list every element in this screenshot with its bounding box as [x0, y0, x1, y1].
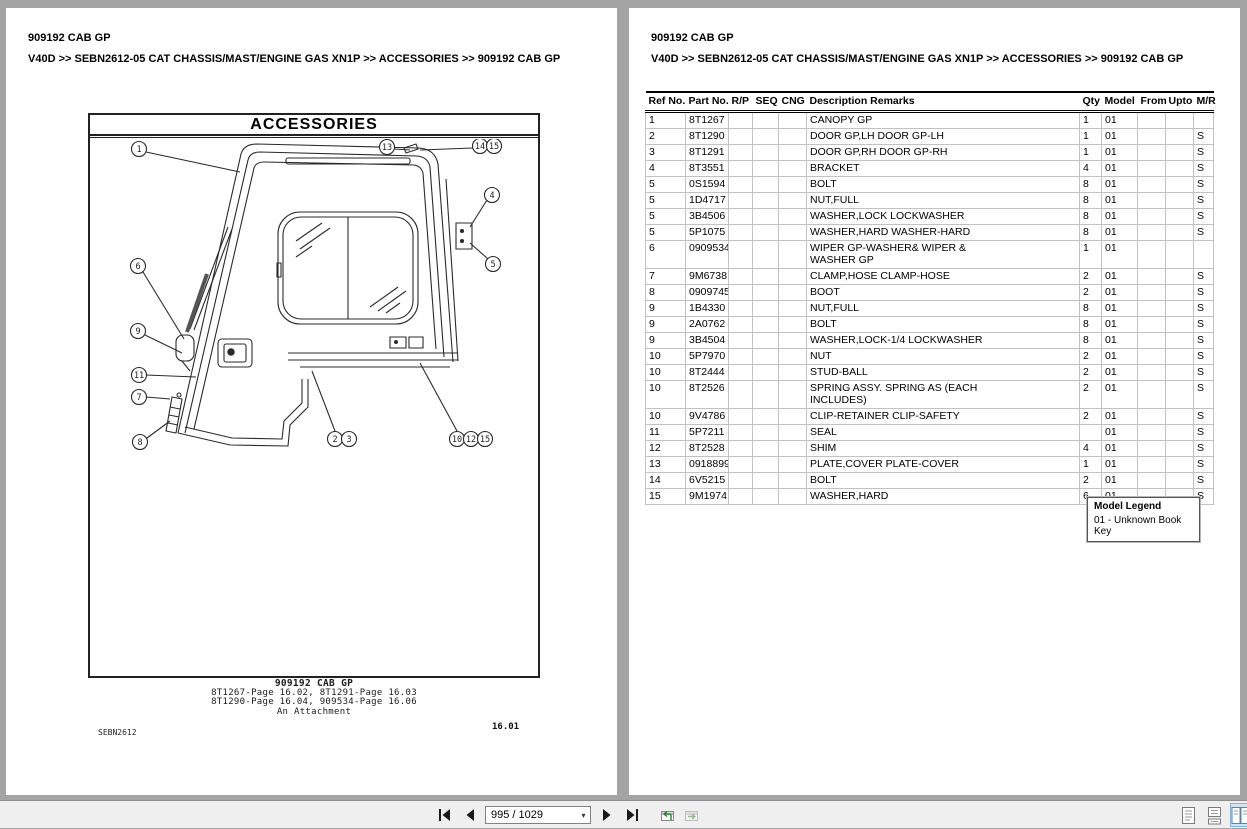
model-legend-box: Model Legend 01 - Unknown Book Key	[1087, 497, 1200, 542]
table-cell: 1B4330	[686, 301, 729, 317]
table-cell: 1	[646, 112, 686, 129]
table-cell: S	[1194, 129, 1214, 145]
table-cell	[1166, 161, 1194, 177]
table-cell: 9	[646, 317, 686, 333]
table-cell	[1138, 129, 1166, 145]
table-cell	[1166, 409, 1194, 425]
previous-page-button[interactable]	[460, 806, 478, 824]
table-cell: 3B4506	[686, 209, 729, 225]
table-cell: WASHER,HARD WASHER-HARD	[807, 225, 1080, 241]
previous-view-icon	[659, 807, 676, 823]
single-page-layout-icon	[1181, 806, 1196, 825]
table-cell: BOLT	[807, 177, 1080, 193]
table-cell: 01	[1102, 193, 1138, 209]
table-cell: S	[1194, 425, 1214, 441]
doc-code: SEBN2612	[98, 728, 137, 737]
table-cell	[1138, 285, 1166, 301]
table-cell	[753, 145, 779, 161]
svg-text:3: 3	[346, 435, 351, 445]
table-cell	[753, 193, 779, 209]
next-view-icon	[683, 807, 700, 823]
table-cell: 2	[1080, 381, 1102, 409]
table-cell: NUT,FULL	[807, 193, 1080, 209]
first-page-button[interactable]	[435, 806, 453, 824]
parts-table-header: Ref No.Part No.R/PSEQCNGDescription Rema…	[646, 92, 1214, 112]
table-cell: STUD-BALL	[807, 365, 1080, 381]
table-cell: 2	[1080, 269, 1102, 285]
table-cell: S	[1194, 285, 1214, 301]
breadcrumb: V40D >> SEBN2612-05 CAT CHASSIS/MAST/ENG…	[651, 53, 1183, 65]
table-cell: 01	[1102, 457, 1138, 473]
table-cell	[729, 317, 753, 333]
hinge-part	[176, 335, 194, 361]
table-row: 28T1290DOOR GP,LH DOOR GP-LH101S	[646, 129, 1214, 145]
table-cell	[753, 285, 779, 301]
table-cell	[729, 177, 753, 193]
table-cell	[753, 129, 779, 145]
viewer-status-bar: 995 / 1029 ▾	[0, 800, 1247, 828]
diagram-caption: 909192 CAB GP 8T1267-Page 16.02, 8T1291-…	[88, 679, 540, 717]
table-row: 60909534WIPER GP-WASHER& WIPER & WASHER …	[646, 241, 1214, 269]
table-row: 79M6738CLAMP,HOSE CLAMP-HOSE201S	[646, 269, 1214, 285]
table-cell: 8T2526	[686, 381, 729, 409]
table-row: 18T1267CANOPY GP101	[646, 112, 1214, 129]
table-cell: 0909745	[686, 285, 729, 301]
table-cell	[753, 269, 779, 285]
table-cell	[1166, 225, 1194, 241]
svg-text:4: 4	[489, 191, 494, 201]
svg-text:12: 12	[466, 435, 476, 445]
table-cell	[1166, 269, 1194, 285]
table-cell	[729, 129, 753, 145]
table-cell: 01	[1102, 209, 1138, 225]
cab-outline-outer	[178, 144, 453, 433]
table-cell	[1138, 301, 1166, 317]
single-page-layout-button[interactable]	[1178, 803, 1199, 827]
table-cell: 01	[1102, 441, 1138, 457]
table-cell	[1166, 441, 1194, 457]
table-cell: CLIP-RETAINER CLIP-SAFETY	[807, 409, 1080, 425]
table-cell: S	[1194, 333, 1214, 349]
table-cell: 10	[646, 365, 686, 381]
table-cell: 2	[1080, 473, 1102, 489]
table-row: 146V5215BOLT201S	[646, 473, 1214, 489]
svg-text:13: 13	[382, 143, 392, 153]
caption-line-3: An Attachment	[88, 708, 540, 718]
table-cell: S	[1194, 225, 1214, 241]
table-cell: WIPER GP-WASHER& WIPER & WASHER GP	[807, 241, 1080, 269]
table-cell	[1166, 285, 1194, 301]
table-cell	[1138, 161, 1166, 177]
hinge-line	[182, 361, 190, 371]
table-cell	[1166, 333, 1194, 349]
table-cell	[1166, 145, 1194, 161]
table-cell	[1138, 112, 1166, 129]
model-legend-entry: 01 - Unknown Book Key	[1094, 515, 1193, 537]
table-cell: S	[1194, 209, 1214, 225]
table-cell: 01	[1102, 473, 1138, 489]
table-cell	[779, 112, 807, 129]
table-cell	[729, 301, 753, 317]
table-cell: 8T2444	[686, 365, 729, 381]
column-header: Description Remarks	[807, 92, 1080, 112]
table-cell: 8	[1080, 317, 1102, 333]
svg-text:10: 10	[452, 435, 462, 445]
table-cell	[753, 457, 779, 473]
table-cell: 01	[1102, 241, 1138, 269]
table-cell	[1138, 317, 1166, 333]
svg-text:14: 14	[475, 142, 485, 152]
table-cell	[779, 349, 807, 365]
table-cell: 5	[646, 209, 686, 225]
table-cell	[779, 193, 807, 209]
table-cell: SEAL	[807, 425, 1080, 441]
previous-view-button[interactable]	[658, 806, 676, 824]
latch-knob	[228, 349, 234, 355]
table-cell: 9M6738	[686, 269, 729, 285]
table-row: 108T2444STUD-BALL201S	[646, 365, 1214, 381]
table-cell	[1138, 441, 1166, 457]
table-cell	[729, 473, 753, 489]
table-cell: 8	[1080, 225, 1102, 241]
table-cell	[779, 301, 807, 317]
table-cell: 10	[646, 349, 686, 365]
table-cell: 01	[1102, 129, 1138, 145]
parts-table-body: 18T1267CANOPY GP10128T1290DOOR GP,LH DOO…	[646, 112, 1214, 505]
column-header: From	[1138, 92, 1166, 112]
bracket-bolt-2	[461, 240, 464, 243]
top-clip	[404, 144, 418, 153]
table-cell: SPRING ASSY. SPRING AS (EACH INCLUDES)	[807, 381, 1080, 409]
table-cell: 2	[1080, 409, 1102, 425]
right-pillar	[446, 179, 458, 361]
table-cell: S	[1194, 317, 1214, 333]
table-cell: NUT,FULL	[807, 301, 1080, 317]
table-cell: 8	[1080, 209, 1102, 225]
cab-line-drawing: 1 13 14 15 4 5 6 9 11 7 8 2 3 10 12 15	[90, 139, 538, 676]
table-cell	[1138, 241, 1166, 269]
table-cell: 8T2528	[686, 441, 729, 457]
table-cell: S	[1194, 381, 1214, 409]
pdf-page-right: 909192 CAB GP V40D >> SEBN2612-05 CAT CH…	[629, 8, 1240, 795]
svg-text:15: 15	[489, 142, 499, 152]
table-cell: PLATE,COVER PLATE-COVER	[807, 457, 1080, 473]
table-cell: 4	[1080, 161, 1102, 177]
table-cell: 1	[1080, 145, 1102, 161]
page-dropdown-arrow-icon[interactable]: ▾	[577, 807, 590, 823]
table-cell	[779, 241, 807, 269]
table-cell: S	[1194, 193, 1214, 209]
page-title: 909192 CAB GP	[651, 32, 734, 44]
table-cell	[1166, 112, 1194, 129]
right-bracket	[456, 223, 472, 249]
table-cell	[753, 489, 779, 505]
pdf-page-left: 909192 CAB GP V40D >> SEBN2612-05 CAT CH…	[6, 8, 617, 795]
diagram-title: ACCESSORIES	[250, 116, 377, 133]
table-cell: 5P1075	[686, 225, 729, 241]
svg-text:6: 6	[135, 262, 140, 272]
table-row: 50S1594BOLT801S	[646, 177, 1214, 193]
table-cell: 9M1974	[686, 489, 729, 505]
table-cell	[729, 193, 753, 209]
table-cell: S	[1194, 177, 1214, 193]
table-cell	[1166, 177, 1194, 193]
table-cell: 01	[1102, 112, 1138, 129]
first-page-icon	[437, 807, 452, 823]
table-cell	[779, 285, 807, 301]
continuous-layout-icon	[1207, 806, 1222, 825]
page-indicator: 995 / 1029	[486, 809, 577, 821]
header-row: Ref No.Part No.R/PSEQCNGDescription Rema…	[646, 92, 1214, 112]
table-cell	[753, 161, 779, 177]
wiper-arm-a	[190, 227, 228, 329]
table-row: 93B4504WASHER,LOCK-1/4 LOCKWASHER801S	[646, 333, 1214, 349]
table-cell	[1080, 425, 1102, 441]
table-cell: 2	[646, 129, 686, 145]
rail-bolt	[395, 341, 398, 344]
table-cell: S	[1194, 473, 1214, 489]
table-cell: 3	[646, 145, 686, 161]
table-cell: 1	[1080, 129, 1102, 145]
table-cell: S	[1194, 365, 1214, 381]
table-cell: DOOR GP,LH DOOR GP-LH	[807, 129, 1080, 145]
table-cell	[1138, 365, 1166, 381]
table-cell: S	[1194, 441, 1214, 457]
table-cell: S	[1194, 349, 1214, 365]
callouts: 1 13 14 15 4 5 6 9 11 7 8 2 3 10 12 15	[131, 139, 502, 450]
next-page-button[interactable]	[598, 806, 616, 824]
table-cell	[1138, 145, 1166, 161]
table-cell	[1194, 241, 1214, 269]
table-cell	[1166, 381, 1194, 409]
table-cell	[729, 425, 753, 441]
table-cell: NUT	[807, 349, 1080, 365]
table-cell: 0S1594	[686, 177, 729, 193]
table-cell: WASHER,HARD	[807, 489, 1080, 505]
svg-text:5: 5	[490, 260, 495, 270]
table-cell	[753, 177, 779, 193]
table-cell: 11	[646, 425, 686, 441]
table-cell	[1166, 241, 1194, 269]
svg-text:1: 1	[136, 145, 141, 155]
leader-lines	[143, 148, 488, 438]
model-legend-title: Model Legend	[1094, 501, 1193, 512]
table-row: 128T2528SHIM401S	[646, 441, 1214, 457]
table-cell	[1166, 193, 1194, 209]
svg-text:9: 9	[135, 327, 140, 337]
table-cell	[1166, 457, 1194, 473]
table-cell: 4	[1080, 441, 1102, 457]
table-cell: 01	[1102, 225, 1138, 241]
table-cell: 1	[1080, 457, 1102, 473]
table-cell	[753, 209, 779, 225]
table-cell: 10	[646, 409, 686, 425]
table-cell	[729, 381, 753, 409]
column-header: M/R	[1194, 92, 1214, 112]
table-cell: 13	[646, 457, 686, 473]
table-cell: 7	[646, 269, 686, 285]
table-cell	[779, 473, 807, 489]
table-cell: BOLT	[807, 317, 1080, 333]
table-cell: WASHER,LOCK-1/4 LOCKWASHER	[807, 333, 1080, 349]
wiper-arm-b	[194, 229, 232, 330]
table-cell: 5	[646, 225, 686, 241]
continuous-layout-button[interactable]	[1204, 803, 1225, 827]
table-cell: 01	[1102, 161, 1138, 177]
table-cell: 01	[1102, 409, 1138, 425]
rail-block-right	[409, 337, 423, 348]
table-cell: 01	[1102, 177, 1138, 193]
last-page-button[interactable]	[623, 806, 641, 824]
page-number-input[interactable]: 995 / 1029 ▾	[485, 806, 591, 824]
table-row: 92A0762BOLT801S	[646, 317, 1214, 333]
table-cell	[1166, 473, 1194, 489]
table-cell	[779, 269, 807, 285]
table-cell	[779, 145, 807, 161]
table-cell: 2A0762	[686, 317, 729, 333]
table-cell: 2	[1080, 349, 1102, 365]
table-cell: 3B4504	[686, 333, 729, 349]
column-header: Model	[1102, 92, 1138, 112]
next-view-button[interactable]	[682, 806, 700, 824]
table-cell	[1138, 209, 1166, 225]
page-layout-buttons	[1178, 802, 1247, 828]
table-row: 105P7970NUT201S	[646, 349, 1214, 365]
table-cell: 01	[1102, 425, 1138, 441]
table-cell	[779, 225, 807, 241]
table-cell: 1	[1080, 241, 1102, 269]
table-cell	[779, 489, 807, 505]
table-cell	[1138, 349, 1166, 365]
table-cell	[1166, 425, 1194, 441]
table-cell: 8	[1080, 333, 1102, 349]
table-cell: 8	[1080, 177, 1102, 193]
facing-layout-button[interactable]	[1230, 803, 1247, 827]
table-cell	[1166, 301, 1194, 317]
table-cell	[729, 241, 753, 269]
table-cell	[1166, 349, 1194, 365]
table-cell	[779, 161, 807, 177]
table-cell	[779, 129, 807, 145]
table-cell: 5P7970	[686, 349, 729, 365]
latch-inner	[224, 344, 246, 362]
table-cell	[729, 365, 753, 381]
table-cell: BOOT	[807, 285, 1080, 301]
table-cell	[779, 441, 807, 457]
svg-text:11: 11	[134, 371, 144, 381]
table-cell: S	[1194, 409, 1214, 425]
table-cell: 10	[646, 381, 686, 409]
table-cell: CLAMP,HOSE CLAMP-HOSE	[807, 269, 1080, 285]
table-cell: 8	[1080, 193, 1102, 209]
table-cell	[729, 441, 753, 457]
table-cell	[779, 317, 807, 333]
table-cell: 1	[1080, 112, 1102, 129]
table-cell	[779, 365, 807, 381]
cab-outline-mid	[185, 152, 444, 433]
table-cell: 01	[1102, 269, 1138, 285]
table-cell	[729, 457, 753, 473]
page-title: 909192 CAB GP	[28, 32, 111, 44]
table-cell: 2	[1080, 285, 1102, 301]
table-cell: 9	[646, 333, 686, 349]
table-row: 115P7211SEAL01S	[646, 425, 1214, 441]
table-cell: 5	[646, 177, 686, 193]
column-header: Ref No.	[646, 92, 686, 112]
previous-page-icon	[463, 807, 476, 823]
table-cell	[753, 112, 779, 129]
table-cell	[729, 285, 753, 301]
table-cell	[729, 349, 753, 365]
view-history-buttons	[658, 806, 700, 824]
table-cell	[1138, 425, 1166, 441]
table-cell: S	[1194, 269, 1214, 285]
table-cell	[1138, 177, 1166, 193]
table-cell	[779, 381, 807, 409]
table-row: 130918899PLATE,COVER PLATE-COVER101S	[646, 457, 1214, 473]
table-row: 38T1291DOOR GP,RH DOOR GP-RH101S	[646, 145, 1214, 161]
table-cell: WASHER,LOCK LOCKWASHER	[807, 209, 1080, 225]
svg-text:2: 2	[332, 435, 337, 445]
table-row: 108T2526SPRING ASSY. SPRING AS (EACH INC…	[646, 381, 1214, 409]
table-cell: BRACKET	[807, 161, 1080, 177]
table-cell: 9	[646, 301, 686, 317]
table-cell	[1138, 193, 1166, 209]
table-cell: 01	[1102, 333, 1138, 349]
table-cell: 6V5215	[686, 473, 729, 489]
table-cell	[753, 473, 779, 489]
table-cell: S	[1194, 161, 1214, 177]
svg-text:7: 7	[136, 393, 141, 403]
table-cell: 12	[646, 441, 686, 457]
table-cell	[753, 409, 779, 425]
column-header: Upto	[1166, 92, 1194, 112]
table-cell	[753, 301, 779, 317]
column-header: Part No.	[686, 92, 729, 112]
strip-bolt	[177, 393, 181, 397]
table-cell	[729, 225, 753, 241]
diagram-title-bar: ACCESSORIES	[90, 115, 538, 136]
door-step-inner	[185, 379, 302, 439]
table-cell: 01	[1102, 349, 1138, 365]
rail-block-left	[390, 337, 406, 348]
table-cell: 8T1267	[686, 112, 729, 129]
table-cell: 0909534	[686, 241, 729, 269]
table-row: 53B4506WASHER,LOCK LOCKWASHER801S	[646, 209, 1214, 225]
table-cell: SHIM	[807, 441, 1080, 457]
table-cell	[753, 425, 779, 441]
table-cell	[753, 225, 779, 241]
table-cell	[753, 241, 779, 269]
table-cell	[753, 441, 779, 457]
facing-layout-icon	[1231, 806, 1247, 825]
table-row: 48T3551BRACKET401S	[646, 161, 1214, 177]
table-cell: DOOR GP,RH DOOR GP-RH	[807, 145, 1080, 161]
table-cell: 8	[646, 285, 686, 301]
table-cell	[729, 489, 753, 505]
table-cell: 01	[1102, 317, 1138, 333]
table-cell: 4	[646, 161, 686, 177]
table-cell: S	[1194, 457, 1214, 473]
table-cell	[1138, 457, 1166, 473]
table-cell	[779, 209, 807, 225]
table-cell: 01	[1102, 365, 1138, 381]
table-cell	[1138, 473, 1166, 489]
table-cell: BOLT	[807, 473, 1080, 489]
table-cell: S	[1194, 145, 1214, 161]
table-cell	[729, 161, 753, 177]
table-cell	[1166, 365, 1194, 381]
